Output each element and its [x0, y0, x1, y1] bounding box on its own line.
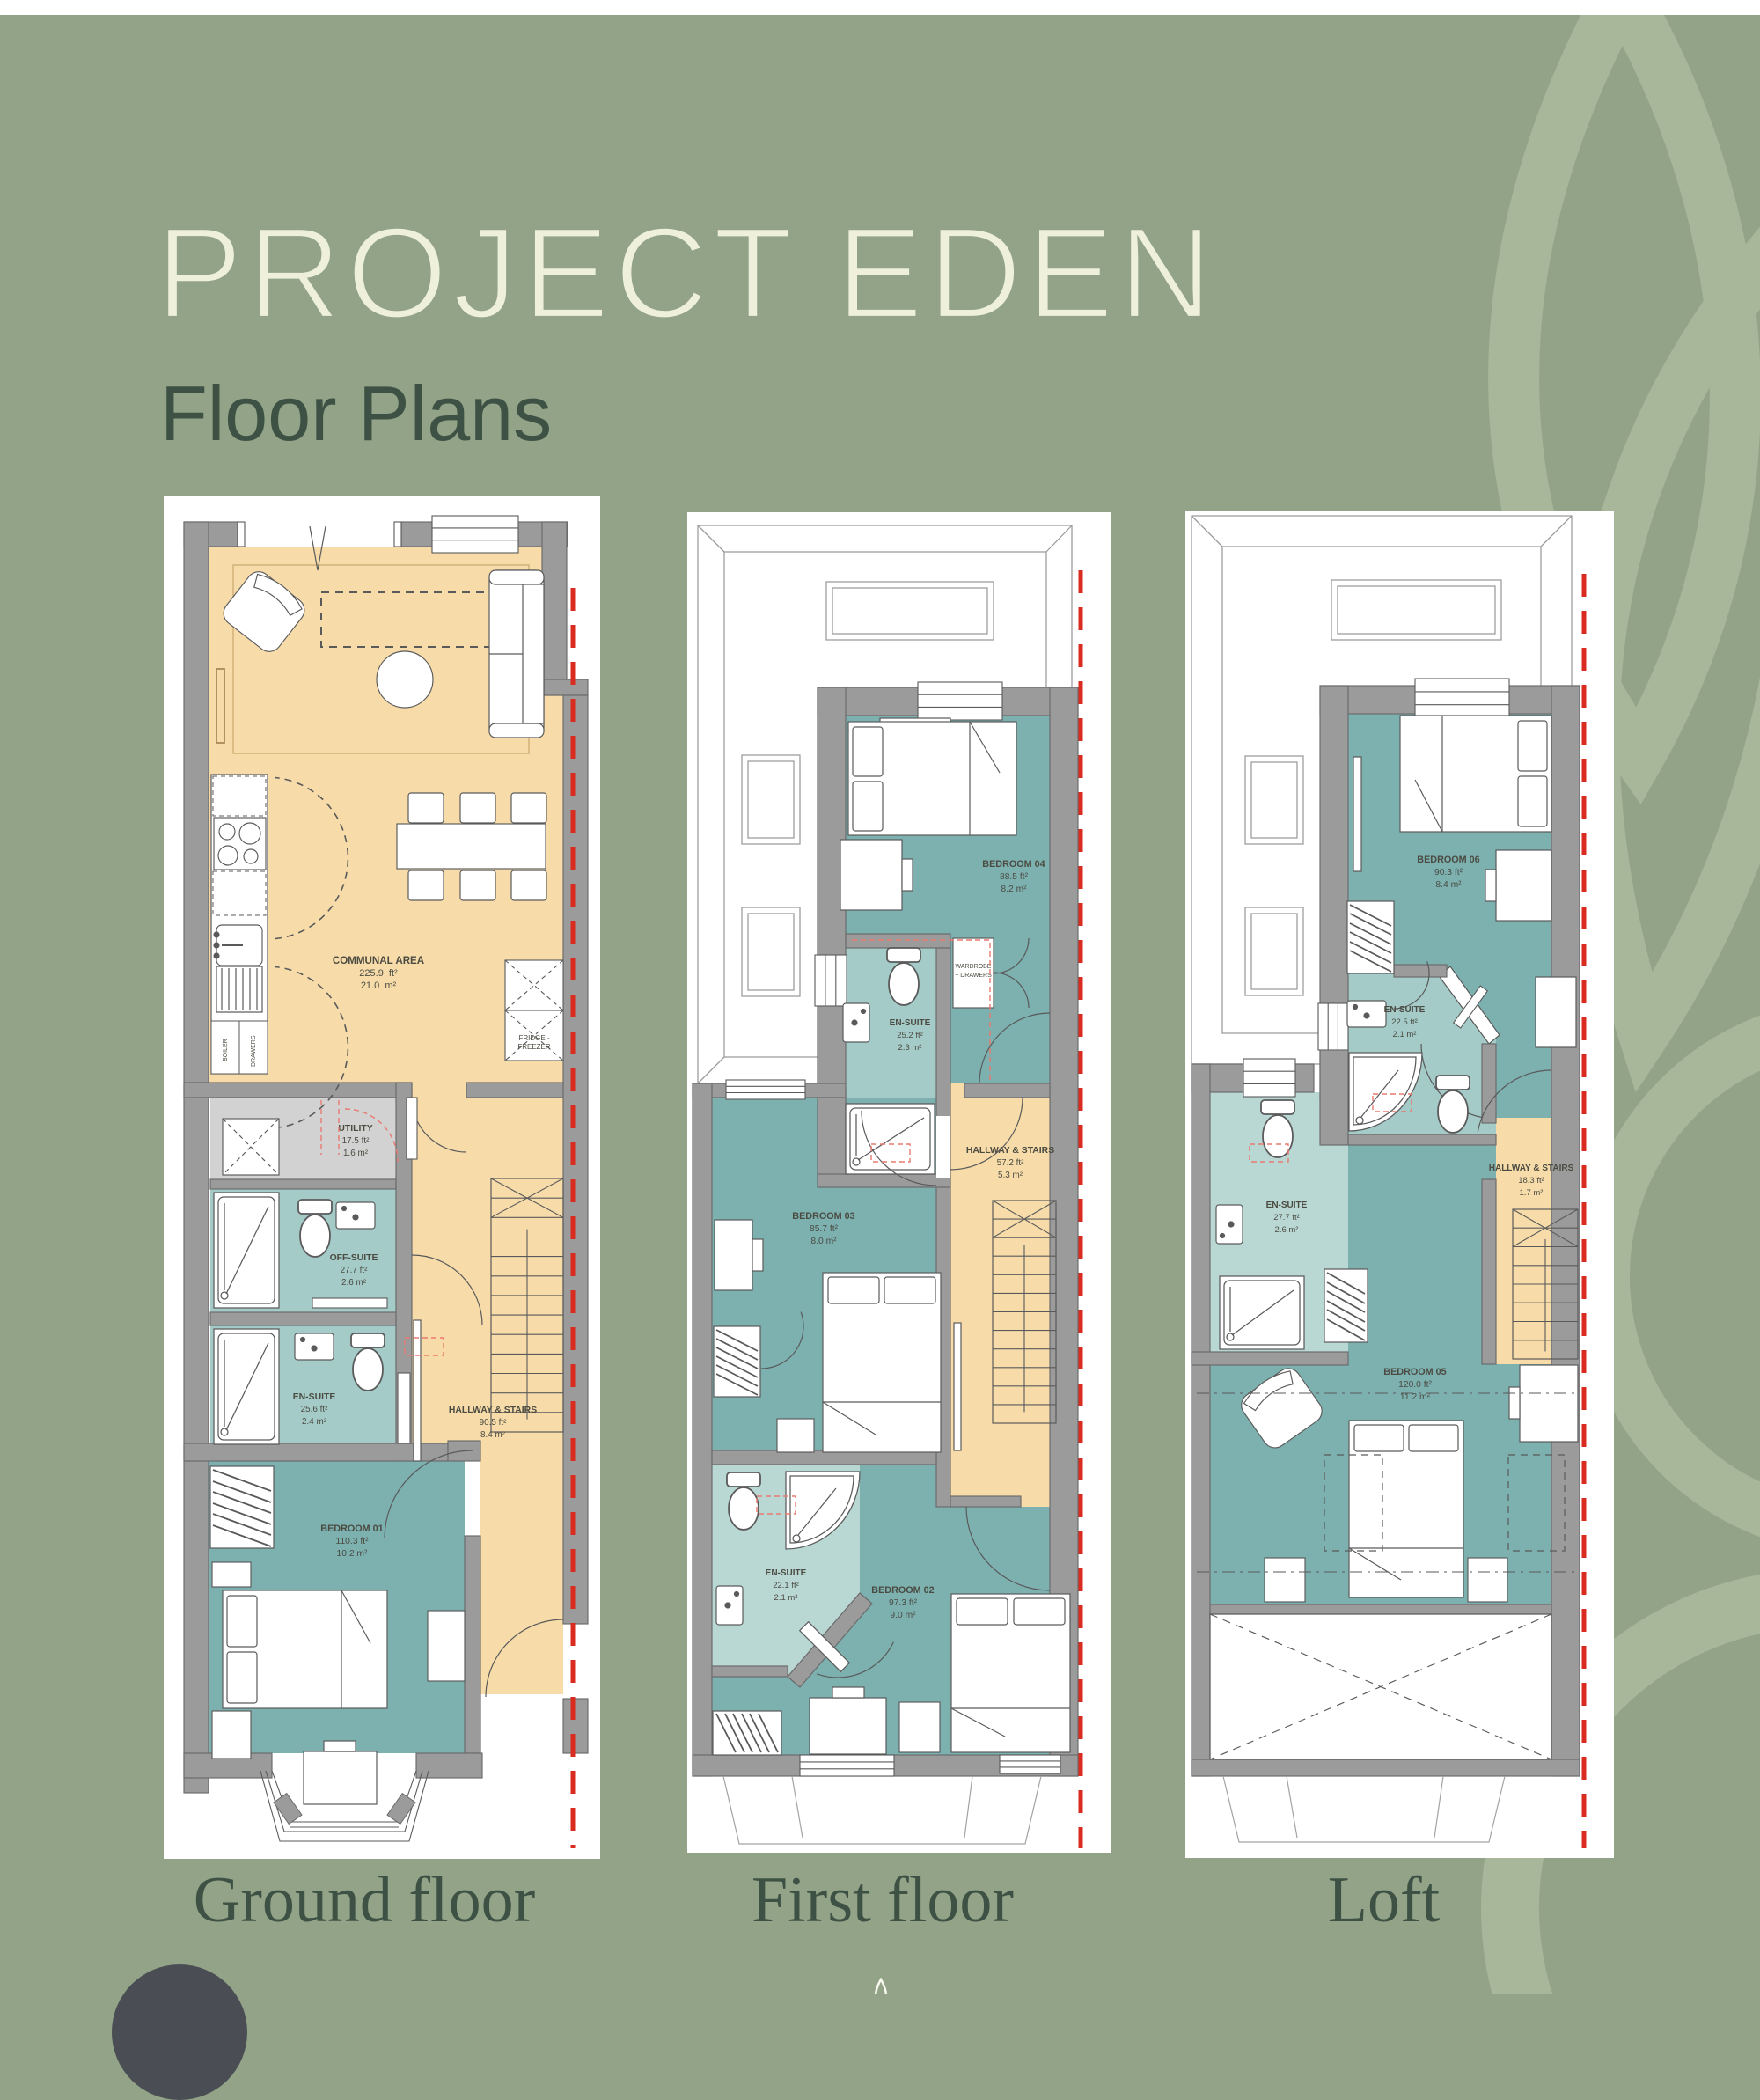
svg-text:90.5 ft²: 90.5 ft²	[480, 1418, 507, 1428]
svg-text:18.3 ft²: 18.3 ft²	[1518, 1176, 1544, 1186]
svg-text:22.5 ft²: 22.5 ft²	[1391, 1017, 1418, 1027]
svg-text:FREEZER: FREEZER	[517, 1043, 551, 1051]
svg-text:EN-SUITE: EN-SUITE	[293, 1392, 336, 1402]
svg-text:BEDROOM 04: BEDROOM 04	[982, 859, 1045, 870]
svg-text:1.7 m²: 1.7 m²	[1520, 1188, 1544, 1198]
svg-text:BEDROOM 06: BEDROOM 06	[1417, 855, 1479, 865]
svg-text:BEDROOM 01: BEDROOM 01	[320, 1524, 383, 1534]
svg-text:FRIDGE -: FRIDGE -	[518, 1034, 549, 1042]
svg-text:27.7 ft²: 27.7 ft²	[341, 1266, 368, 1275]
svg-text:17.5 ft²: 17.5 ft²	[342, 1136, 370, 1146]
svg-text:BEDROOM 02: BEDROOM 02	[871, 1585, 934, 1596]
svg-text:DRAWERS: DRAWERS	[251, 1035, 257, 1067]
svg-text:EN-SUITE: EN-SUITE	[890, 1018, 931, 1028]
svg-text:57.2 ft²: 57.2 ft²	[997, 1158, 1024, 1168]
svg-text:120.0 ft²: 120.0 ft²	[1398, 1380, 1432, 1390]
svg-text:225.9 ft²: 225.9 ft²	[359, 968, 398, 979]
svg-text:1.6 m²: 1.6 m²	[343, 1149, 369, 1158]
svg-text:10.2 m²: 10.2 m²	[337, 1549, 368, 1559]
svg-text:8.0 m²: 8.0 m²	[810, 1237, 837, 1246]
svg-text:11.2 m²: 11.2 m²	[1400, 1392, 1431, 1402]
svg-text:OFF-SUITE: OFF-SUITE	[330, 1253, 378, 1263]
svg-text:5.3 m²: 5.3 m²	[998, 1171, 1023, 1180]
svg-text:BEDROOM 03: BEDROOM 03	[792, 1211, 854, 1222]
svg-text:BOILER: BOILER	[223, 1039, 229, 1061]
svg-text:25.6 ft²: 25.6 ft²	[301, 1405, 328, 1414]
svg-text:88.5 ft²: 88.5 ft²	[1000, 872, 1029, 882]
svg-text:27.7 ft²: 27.7 ft²	[1273, 1213, 1300, 1223]
svg-text:90.3 ft²: 90.3 ft²	[1434, 868, 1463, 877]
svg-text:+ DRAWERS: + DRAWERS	[955, 973, 992, 979]
svg-text:2.4 m²: 2.4 m²	[302, 1417, 327, 1427]
svg-text:8.4 m²: 8.4 m²	[1435, 880, 1462, 890]
svg-text:21.0 m²: 21.0 m²	[361, 980, 397, 991]
svg-text:BEDROOM 05: BEDROOM 05	[1383, 1367, 1446, 1377]
svg-text:EN-SUITE: EN-SUITE	[1266, 1201, 1308, 1210]
svg-text:HALLWAY & STAIRS: HALLWAY & STAIRS	[1489, 1164, 1574, 1173]
svg-text:25.2 ft²: 25.2 ft²	[897, 1031, 923, 1040]
svg-text:8.2 m²: 8.2 m²	[1001, 885, 1027, 894]
svg-text:8.4 m²: 8.4 m²	[480, 1430, 506, 1440]
svg-text:WARDROBE: WARDROBE	[956, 964, 992, 970]
svg-text:2.6 m²: 2.6 m²	[341, 1278, 367, 1288]
svg-text:85.7 ft²: 85.7 ft²	[810, 1224, 839, 1234]
svg-text:HALLWAY & STAIRS: HALLWAY & STAIRS	[449, 1406, 537, 1415]
svg-text:110.3 ft²: 110.3 ft²	[335, 1537, 369, 1546]
svg-text:2.6 m²: 2.6 m²	[1275, 1225, 1299, 1235]
svg-text:2.3 m²: 2.3 m²	[898, 1043, 922, 1053]
svg-text:COMMUNAL AREA: COMMUNAL AREA	[333, 955, 425, 966]
svg-text:2.1 m²: 2.1 m²	[1393, 1030, 1417, 1039]
svg-text:EN-SUITE: EN-SUITE	[1384, 1005, 1426, 1015]
svg-text:97.3 ft²: 97.3 ft²	[889, 1598, 918, 1608]
svg-text:UTILITY: UTILITY	[338, 1124, 372, 1134]
svg-text:22.1 ft²: 22.1 ft²	[773, 1581, 799, 1590]
svg-text:EN-SUITE: EN-SUITE	[766, 1568, 807, 1578]
svg-text:2.1 m²: 2.1 m²	[774, 1593, 798, 1603]
svg-text:HALLWAY & STAIRS: HALLWAY & STAIRS	[966, 1146, 1054, 1156]
svg-text:9.0 m²: 9.0 m²	[890, 1611, 916, 1620]
